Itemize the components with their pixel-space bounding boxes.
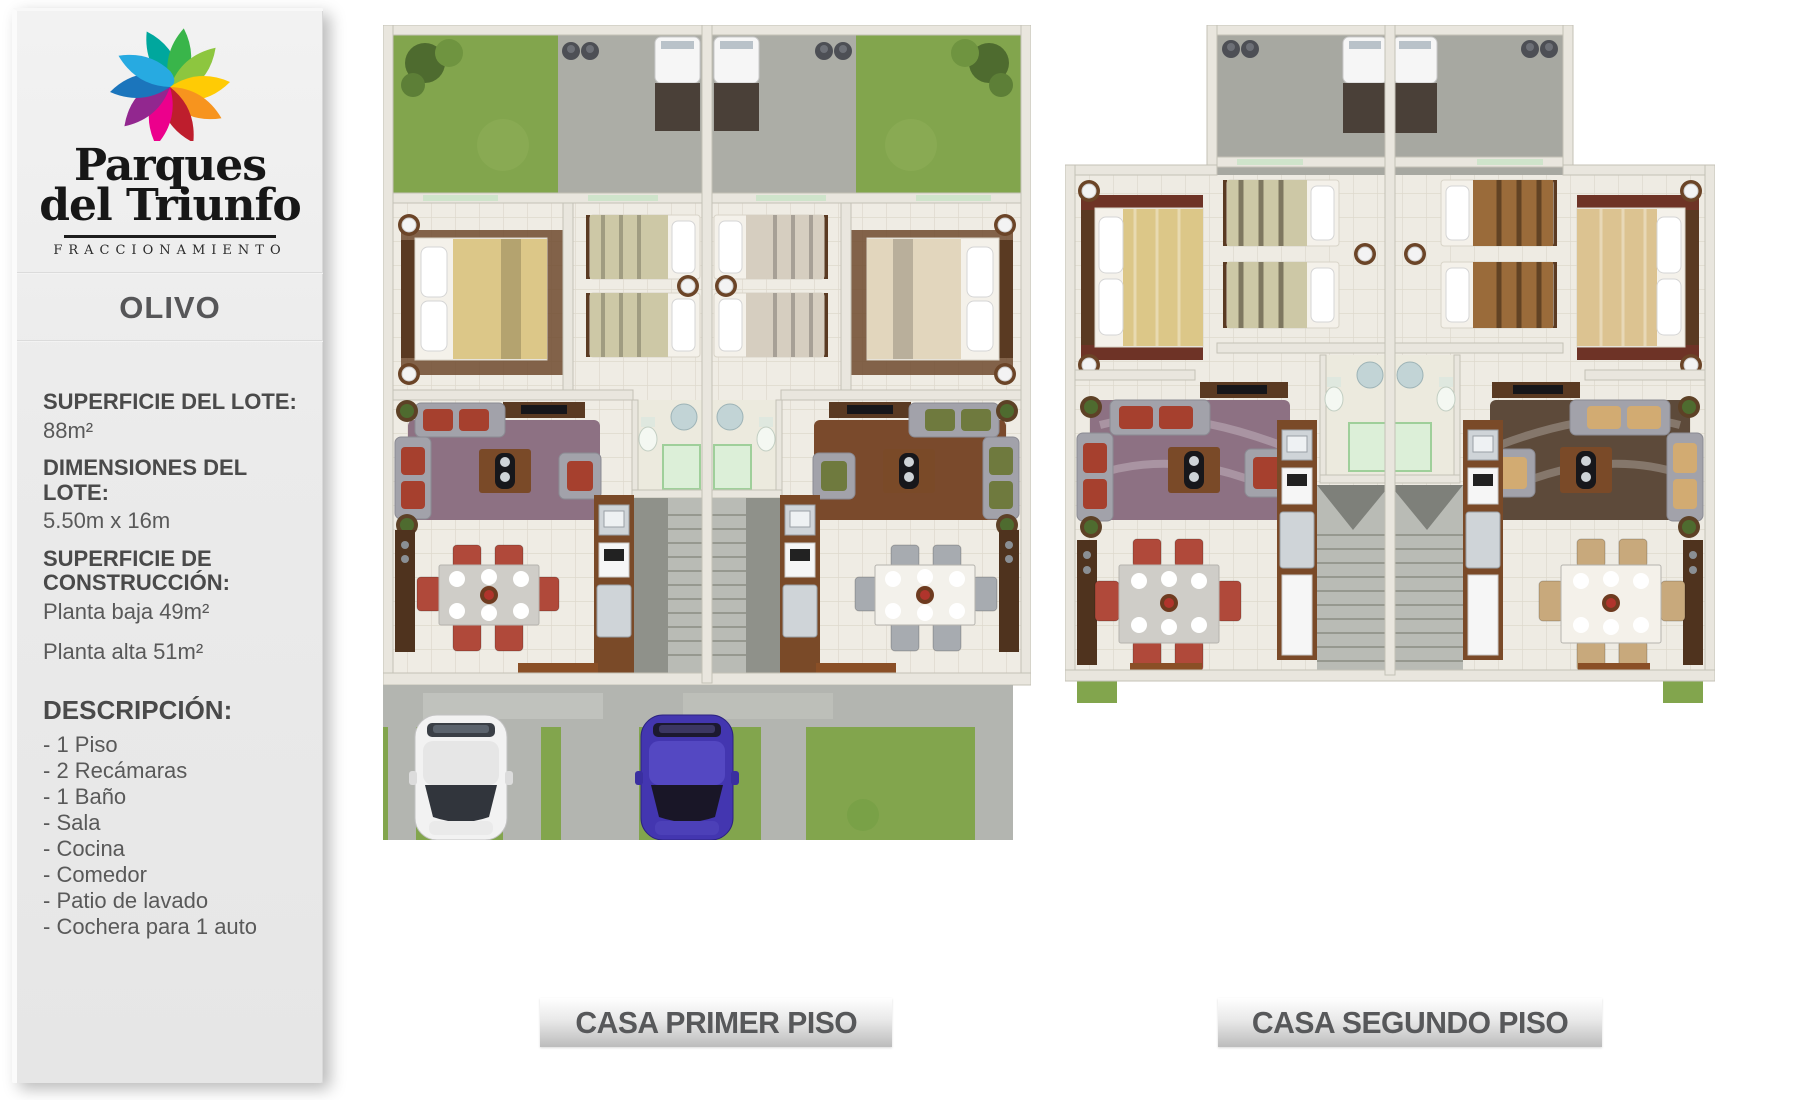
info-sidebar: Parques del Triunfo FRACCIONAMIENTO OLIV… [12, 8, 323, 1083]
description-item: - Comedor [43, 862, 297, 888]
blue-car [635, 715, 739, 840]
kitchen [594, 495, 634, 675]
armchair [559, 453, 601, 499]
garden-strip [1077, 681, 1117, 703]
duplex-unit-left [393, 35, 702, 683]
staircase [634, 498, 702, 675]
brand-tagline: FRACCIONAMIENTO [17, 243, 323, 258]
laundry-patio [558, 35, 702, 195]
caption-second-floor: CASA SEGUNDO PISO [1218, 998, 1602, 1047]
utility-sink [655, 83, 700, 131]
white-car [409, 715, 513, 840]
bathroom [632, 400, 702, 492]
description-list: - 1 Piso - 2 Recámaras - 1 Baño - Sala -… [43, 732, 297, 940]
duplex-unit-left [1075, 35, 1390, 703]
washing-machine-icon [655, 37, 700, 83]
backyard-garden [393, 35, 558, 195]
coffee-table [1168, 447, 1220, 493]
living-room [1077, 382, 1290, 538]
toilet-icon [639, 417, 657, 451]
description-item: - 1 Baño [43, 784, 297, 810]
living-room [395, 400, 601, 536]
page: Parques del Triunfo FRACCIONAMIENTO OLIV… [0, 0, 1800, 1100]
description-title: DESCRIPCIÓN: [43, 695, 297, 726]
description-item: - Cocina [43, 836, 297, 862]
washing-machine-icon [1343, 37, 1387, 83]
bedroom-double [1078, 180, 1203, 376]
driveway [383, 685, 1013, 840]
description-item: - Cochera para 1 auto [43, 914, 297, 940]
caption-first-floor: CASA PRIMER PISO [540, 998, 892, 1047]
description-item: - 2 Recámaras [43, 758, 297, 784]
brand-name-line2: del Triunfo [17, 186, 323, 226]
floor-plan-second-floor [1065, 25, 1715, 705]
spec-construccion-value1: Planta baja 49m² [43, 598, 297, 626]
duplex-unit-right [1390, 35, 1705, 703]
spec-lote-value: 88m² [43, 417, 297, 445]
shower-icon [663, 445, 700, 489]
sofa [395, 437, 431, 519]
spec-dimensiones-value: 5.50m x 16m [43, 507, 297, 535]
toilet-icon [1325, 377, 1343, 411]
sofa [415, 403, 505, 437]
model-name: OLIVO [17, 274, 323, 340]
coffee-table [479, 449, 531, 493]
caption-second-floor-label: CASA SEGUNDO PISO [1252, 1005, 1568, 1041]
bathroom [1320, 355, 1390, 475]
description-item: - Sala [43, 810, 297, 836]
utility-sink [1343, 83, 1387, 133]
sofa [1110, 400, 1210, 435]
bedroom-double [398, 214, 563, 385]
description-item: - 1 Piso [43, 732, 297, 758]
spec-dimensiones-label: DIMENSIONES DEL LOTE: [43, 456, 297, 505]
shower-icon [1349, 423, 1387, 471]
pinwheel-flower-icon [104, 23, 236, 141]
description-item: - Patio de lavado [43, 888, 297, 914]
caption-first-floor-label: CASA PRIMER PISO [575, 1005, 857, 1041]
floor-plan-first-floor [383, 25, 1031, 840]
staircase [1317, 485, 1390, 675]
kitchen [1277, 420, 1317, 660]
spec-details: SUPERFICIE DEL LOTE: 88m² DIMENSIONES DE… [17, 342, 323, 940]
brand-rule [64, 235, 276, 238]
duplex-unit-right [712, 35, 1021, 683]
brand-logo: Parques del Triunfo FRACCIONAMIENTO [17, 11, 323, 258]
sofa [1077, 433, 1113, 521]
spec-lote-label: SUPERFICIE DEL LOTE: [43, 390, 297, 415]
spec-construccion-value2: Planta alta 51m² [43, 638, 297, 666]
spec-construccion-label: SUPERFICIE DE CONSTRUCCIÓN: [43, 547, 297, 596]
